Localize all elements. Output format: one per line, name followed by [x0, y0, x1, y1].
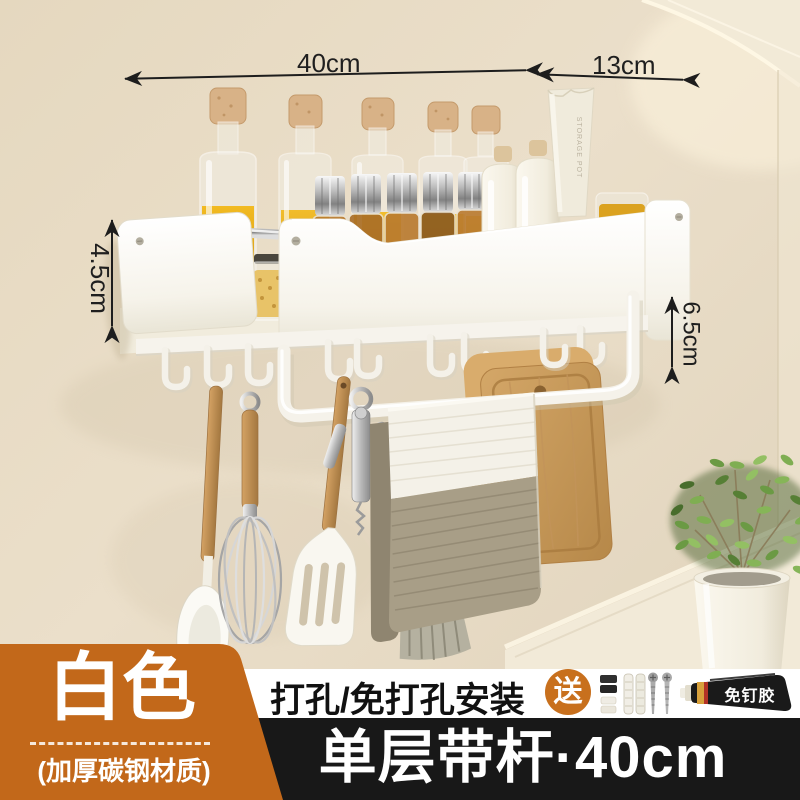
color-name-label: 白色: [0, 648, 244, 728]
screw-icon: [648, 673, 672, 715]
product-spec-title: 单层带杆·40cm: [246, 718, 800, 800]
cup-print-label: STORAGE POT: [575, 117, 582, 178]
gift-badge: 送: [545, 669, 591, 715]
product-image: 40cm 13cm 4.5cm 6.5cm STORAGE POT 打孔/免打孔…: [0, 0, 800, 800]
hardware-icons: [600, 672, 680, 716]
dashed-divider: [30, 742, 210, 745]
clip-icon: [600, 675, 617, 683]
towel: [370, 394, 541, 642]
dim-right-gap: 6.5cm: [677, 301, 705, 366]
dim-shelf-width: 40cm: [297, 48, 361, 79]
anchor-icon: [624, 674, 645, 714]
glue-tube-label: 免钉胶: [712, 682, 788, 706]
dim-side-depth: 13cm: [592, 50, 656, 81]
material-note-label: (加厚碳钢材质): [0, 751, 248, 788]
dim-left-height: 4.5cm: [84, 243, 115, 314]
install-method-text: 打孔/免打孔安装: [270, 672, 525, 723]
